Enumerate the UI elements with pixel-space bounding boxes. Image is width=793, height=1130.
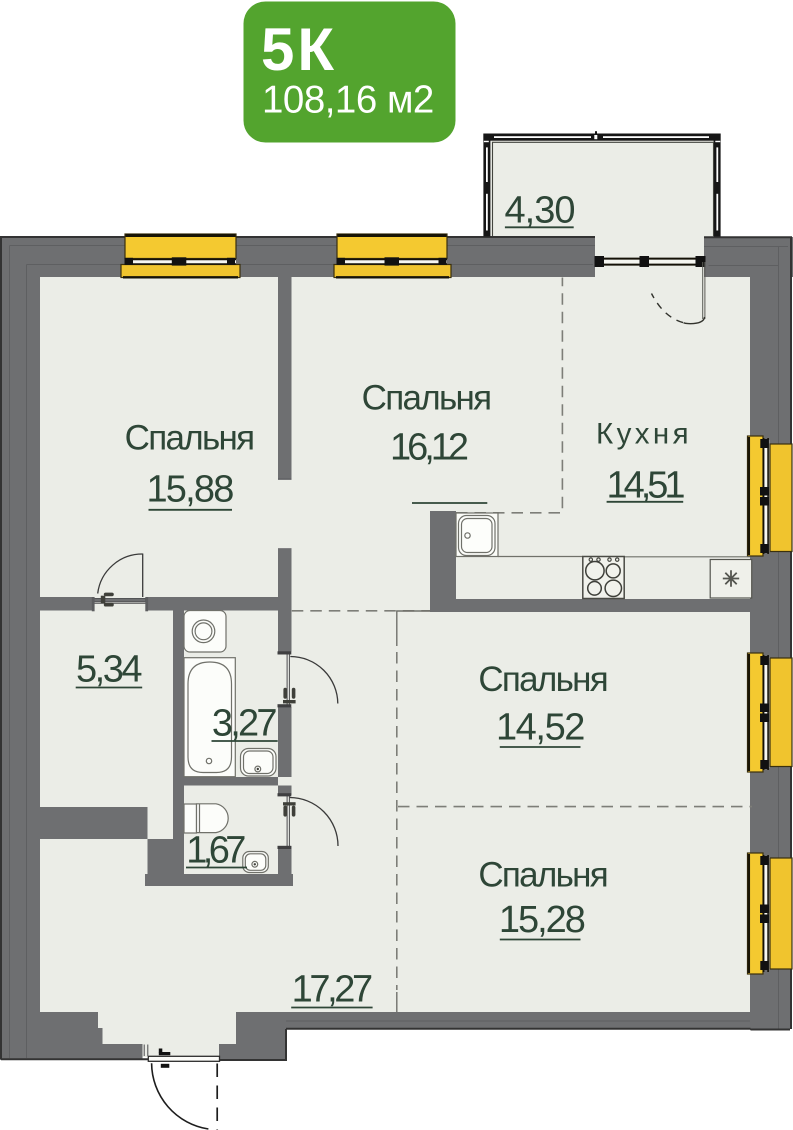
svg-text:1,67: 1,67: [186, 830, 245, 872]
svg-text:Спальня: Спальня: [478, 856, 607, 895]
svg-text:4,30: 4,30: [505, 190, 575, 232]
svg-text:Спальня: Спальня: [478, 660, 607, 699]
svg-text:3,27: 3,27: [212, 703, 276, 745]
svg-text:14,51: 14,51: [606, 465, 684, 507]
svg-text:15,88: 15,88: [146, 469, 233, 511]
svg-text:Кухня: Кухня: [596, 418, 692, 451]
svg-text:16,12: 16,12: [390, 427, 468, 469]
svg-text:Спальня: Спальня: [125, 419, 254, 458]
svg-text:17,27: 17,27: [292, 969, 372, 1011]
svg-text:14,52: 14,52: [496, 707, 584, 749]
svg-text:5К: 5К: [261, 16, 337, 83]
svg-text:108,16 м2: 108,16 м2: [262, 79, 434, 122]
svg-text:15,28: 15,28: [499, 899, 585, 941]
svg-text:Спальня: Спальня: [362, 379, 491, 418]
svg-text:5,34: 5,34: [76, 649, 142, 691]
